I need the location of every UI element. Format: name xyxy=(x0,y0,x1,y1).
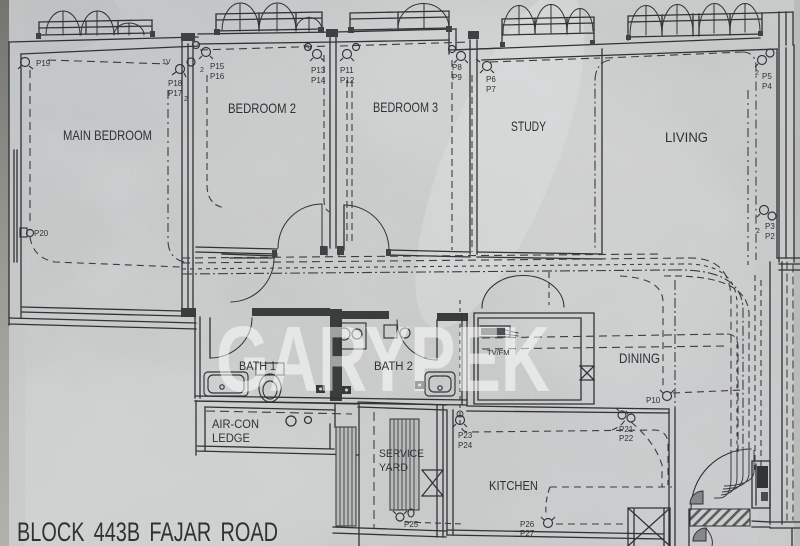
svg-text:P5: P5 xyxy=(762,72,772,81)
svg-text:P21: P21 xyxy=(619,425,634,434)
svg-text:TV/FM: TV/FM xyxy=(487,348,510,357)
svg-text:P8: P8 xyxy=(452,63,462,72)
svg-text:P27: P27 xyxy=(520,529,535,538)
svg-text:2: 2 xyxy=(200,67,204,74)
svg-text:2: 2 xyxy=(756,228,760,235)
svg-text:P19: P19 xyxy=(36,59,51,68)
svg-text:P12: P12 xyxy=(340,76,355,85)
svg-text:P3: P3 xyxy=(765,222,775,231)
svg-text:P2: P2 xyxy=(765,232,775,241)
svg-text:LIVING: LIVING xyxy=(665,129,708,145)
svg-text:P4: P4 xyxy=(762,82,772,91)
svg-text:KITCHEN: KITCHEN xyxy=(489,478,538,493)
svg-text:P22: P22 xyxy=(619,434,634,443)
svg-text:P26: P26 xyxy=(520,520,535,529)
svg-text:P18: P18 xyxy=(168,79,183,88)
svg-text:BEDROOM 3: BEDROOM 3 xyxy=(373,99,438,115)
svg-text:BATH 1: BATH 1 xyxy=(239,361,276,373)
svg-text:1V: 1V xyxy=(162,59,171,66)
svg-text:SERVICE: SERVICE xyxy=(379,448,424,460)
svg-text:YARD: YARD xyxy=(379,462,408,474)
svg-text:P15: P15 xyxy=(210,62,225,71)
svg-text:AIR-CON: AIR-CON xyxy=(212,419,259,431)
svg-text:STUDY: STUDY xyxy=(511,118,546,134)
svg-text:DINING: DINING xyxy=(619,350,660,366)
svg-text:BATH 2: BATH 2 xyxy=(374,361,413,373)
svg-text:LEDGE: LEDGE xyxy=(212,433,250,445)
svg-text:GARYPEK: GARYPEK xyxy=(216,307,550,411)
svg-text:P10: P10 xyxy=(646,396,661,405)
svg-text:TV: TV xyxy=(303,45,312,52)
svg-text:P6: P6 xyxy=(486,75,496,84)
svg-text:BEDROOM 2: BEDROOM 2 xyxy=(228,100,296,116)
svg-text:P13: P13 xyxy=(311,66,326,75)
svg-text:P20: P20 xyxy=(34,229,49,238)
svg-text:2: 2 xyxy=(184,96,188,103)
svg-text:2: 2 xyxy=(755,70,759,77)
svg-text:P23: P23 xyxy=(458,431,473,440)
svg-text:P16: P16 xyxy=(210,72,225,81)
svg-text:BLOCK 443B FAJAR ROAD: BLOCK 443B FAJAR ROAD xyxy=(17,517,278,546)
svg-text:P25: P25 xyxy=(404,520,419,529)
svg-text:P14: P14 xyxy=(311,76,326,85)
svg-text:P9: P9 xyxy=(452,73,462,82)
svg-text:P7: P7 xyxy=(486,85,496,94)
svg-text:P24: P24 xyxy=(458,441,473,450)
svg-text:P17: P17 xyxy=(168,89,183,98)
svg-text:MAIN BEDROOM: MAIN BEDROOM xyxy=(63,127,152,143)
svg-text:P11: P11 xyxy=(340,66,354,75)
